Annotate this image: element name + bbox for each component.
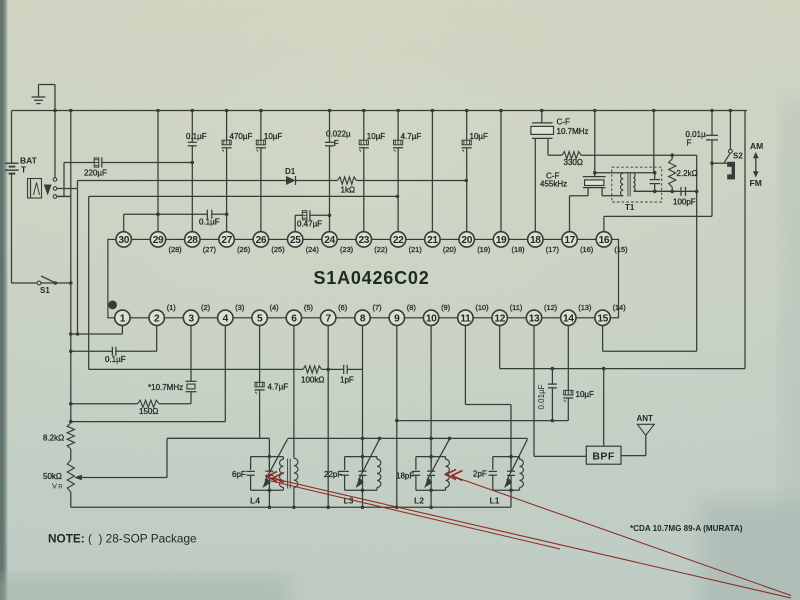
svg-text:S1A0426C02: S1A0426C02 — [313, 268, 429, 288]
svg-text:V: V — [52, 482, 57, 491]
svg-text:24: 24 — [324, 235, 335, 246]
svg-text:L1: L1 — [490, 496, 500, 506]
svg-text:14: 14 — [563, 314, 574, 325]
svg-text:0.47µF: 0.47µF — [297, 220, 322, 229]
svg-text:10µF: 10µF — [264, 132, 283, 141]
svg-text:S2: S2 — [733, 152, 743, 161]
svg-text:(17): (17) — [546, 245, 559, 254]
svg-text:R: R — [58, 485, 63, 491]
svg-text:18: 18 — [530, 235, 541, 246]
svg-text:220µF: 220µF — [84, 169, 107, 178]
svg-text:*CDA 10.7MG 89-A (MURATA): *CDA 10.7MG 89-A (MURATA) — [630, 524, 743, 533]
svg-text:(13): (13) — [578, 303, 591, 312]
svg-text:(9): (9) — [441, 303, 450, 312]
svg-text:4: 4 — [223, 314, 229, 325]
svg-text:0.1µF: 0.1µF — [199, 218, 220, 227]
svg-text:(11): (11) — [510, 303, 523, 312]
svg-text:(10): (10) — [475, 303, 488, 312]
svg-text:10µF: 10µF — [576, 390, 595, 399]
svg-text:19: 19 — [496, 235, 507, 246]
svg-text:(26): (26) — [237, 245, 250, 254]
svg-text:S1: S1 — [40, 286, 50, 295]
svg-text:(3): (3) — [235, 303, 244, 312]
svg-text:5: 5 — [257, 314, 263, 325]
svg-text:3: 3 — [188, 314, 194, 325]
svg-text:2.2kΩ: 2.2kΩ — [677, 169, 698, 178]
svg-text:(20): (20) — [443, 245, 456, 254]
svg-text:21: 21 — [427, 235, 438, 246]
svg-text:10µF: 10µF — [367, 132, 386, 141]
svg-text:15: 15 — [597, 314, 608, 325]
svg-text:L4: L4 — [250, 496, 260, 506]
svg-text:4.7µF: 4.7µF — [268, 383, 289, 392]
svg-text:4.7µF: 4.7µF — [401, 132, 422, 141]
svg-text:0.022µ: 0.022µ — [326, 130, 351, 139]
svg-text:10.7MHz: 10.7MHz — [557, 127, 589, 136]
svg-text:6pF: 6pF — [232, 470, 246, 479]
svg-text:*10.7MHz: *10.7MHz — [148, 383, 183, 392]
svg-text:11: 11 — [460, 314, 471, 325]
svg-text:AM: AM — [750, 141, 763, 151]
svg-text:FM: FM — [750, 178, 762, 188]
svg-text:22pF: 22pF — [324, 470, 342, 479]
svg-text:(14): (14) — [613, 303, 626, 312]
svg-text:1: 1 — [120, 314, 126, 325]
svg-text:26: 26 — [256, 235, 267, 246]
svg-text:470µF: 470µF — [230, 132, 253, 141]
svg-text:20: 20 — [461, 235, 472, 246]
svg-text:NOTE: ( ) 28-SOP Package: NOTE: ( ) 28-SOP Package — [48, 532, 197, 546]
svg-text:(19): (19) — [477, 245, 490, 254]
svg-text:22: 22 — [393, 235, 404, 246]
svg-text:10µF: 10µF — [470, 132, 489, 141]
svg-text:1pF: 1pF — [340, 376, 354, 385]
svg-text:100kΩ: 100kΩ — [301, 376, 324, 385]
svg-text:(27): (27) — [203, 245, 216, 254]
svg-text:(1): (1) — [167, 303, 176, 312]
svg-text:C-F: C-F — [557, 118, 570, 127]
svg-text:T: T — [21, 165, 27, 175]
svg-text:150Ω: 150Ω — [139, 407, 158, 416]
svg-text:(22): (22) — [374, 245, 387, 254]
svg-text:6: 6 — [291, 314, 297, 325]
svg-text:ANT: ANT — [637, 414, 654, 423]
svg-text:(21): (21) — [409, 245, 422, 254]
svg-text:(2): (2) — [201, 303, 210, 312]
svg-text:50kΩ: 50kΩ — [43, 472, 62, 481]
svg-text:25: 25 — [290, 235, 301, 246]
svg-text:29: 29 — [153, 235, 164, 246]
svg-text:23: 23 — [359, 235, 370, 246]
svg-text:2pF: 2pF — [473, 470, 487, 479]
svg-text:455kHz: 455kHz — [540, 180, 567, 189]
svg-text:0.1µF: 0.1µF — [105, 355, 126, 364]
svg-text:18pF: 18pF — [396, 472, 414, 481]
svg-text:0.1µF: 0.1µF — [186, 132, 207, 141]
svg-text:(5): (5) — [304, 303, 313, 312]
svg-text:9: 9 — [394, 314, 400, 325]
svg-text:(24): (24) — [306, 245, 319, 254]
svg-text:30: 30 — [118, 235, 129, 246]
svg-text:(16): (16) — [580, 245, 593, 254]
svg-text:L2: L2 — [414, 496, 424, 506]
svg-text:16: 16 — [599, 235, 610, 246]
svg-text:F: F — [334, 139, 339, 148]
svg-text:0.01µF: 0.01µF — [537, 384, 546, 409]
svg-text:(8): (8) — [407, 303, 416, 312]
svg-text:BPF: BPF — [592, 451, 615, 463]
svg-text:12: 12 — [494, 314, 505, 325]
svg-text:F: F — [687, 139, 692, 148]
svg-text:8: 8 — [360, 314, 366, 325]
svg-text:13: 13 — [529, 314, 540, 325]
svg-text:10: 10 — [426, 314, 437, 325]
svg-text:2: 2 — [154, 314, 160, 325]
svg-text:(4): (4) — [270, 303, 279, 312]
svg-text:330Ω: 330Ω — [564, 158, 583, 167]
svg-text:(7): (7) — [373, 303, 382, 312]
svg-text:(15): (15) — [614, 245, 627, 254]
svg-text:27: 27 — [221, 235, 232, 246]
svg-text:28: 28 — [187, 235, 198, 246]
svg-text:(23): (23) — [340, 245, 353, 254]
svg-text:17: 17 — [564, 235, 575, 246]
svg-text:8.2kΩ: 8.2kΩ — [43, 434, 64, 443]
svg-text:(6): (6) — [338, 303, 347, 312]
svg-text:(12): (12) — [544, 303, 557, 312]
svg-text:T1: T1 — [625, 203, 635, 212]
svg-text:D1: D1 — [285, 167, 296, 176]
svg-text:100pF: 100pF — [673, 198, 696, 207]
svg-text:7: 7 — [326, 314, 332, 325]
svg-text:(28): (28) — [169, 245, 182, 254]
svg-text:(25): (25) — [271, 245, 284, 254]
svg-text:(18): (18) — [512, 245, 525, 254]
svg-text:1kΩ: 1kΩ — [341, 186, 355, 195]
